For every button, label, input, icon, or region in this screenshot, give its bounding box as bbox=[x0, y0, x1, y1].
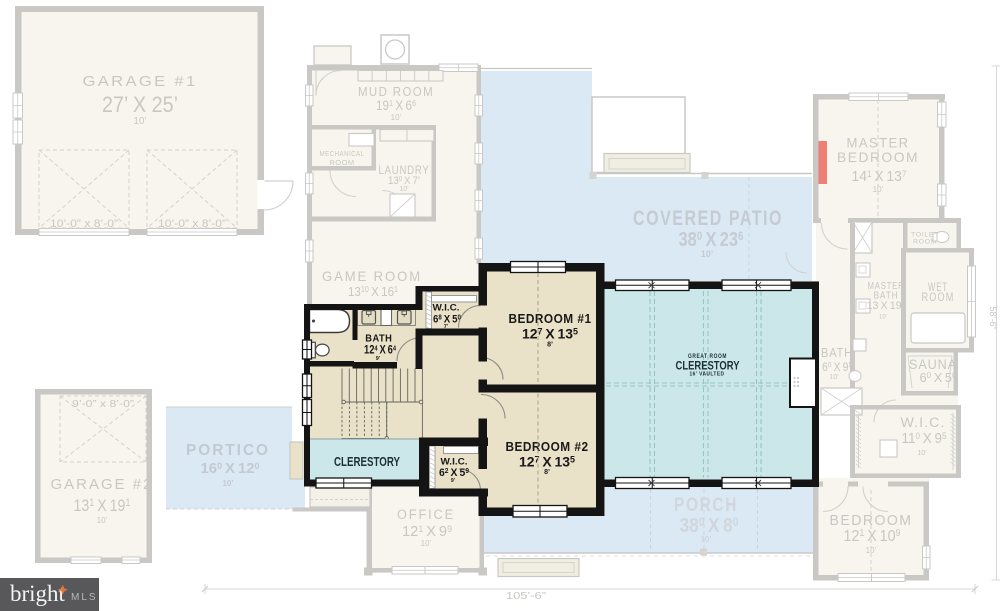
svg-text:W.I.C.: W.I.C. bbox=[901, 415, 946, 430]
svg-text:10’: 10’ bbox=[133, 116, 146, 127]
svg-text:60 X 50: 60 X 50 bbox=[920, 370, 958, 385]
svg-text:GARAGE #1: GARAGE #1 bbox=[83, 74, 198, 90]
svg-text:127 X 135: 127 X 135 bbox=[519, 454, 575, 470]
svg-text:10’-0” x 8’-0”: 10’-0” x 8’-0” bbox=[158, 218, 226, 230]
svg-text:W.I.C.: W.I.C. bbox=[441, 457, 468, 468]
svg-text:CLERESTORY: CLERESTORY bbox=[334, 455, 401, 469]
svg-text:110 X 95: 110 X 95 bbox=[902, 430, 947, 447]
svg-text:PORTICO: PORTICO bbox=[186, 442, 270, 459]
svg-text:10’: 10’ bbox=[391, 113, 402, 122]
svg-text:380 X 80: 380 X 80 bbox=[680, 515, 739, 537]
svg-text:10’: 10’ bbox=[879, 315, 887, 321]
svg-text:27’ X 25’: 27’ X 25’ bbox=[102, 92, 178, 117]
svg-text:16’ VAULTED: 16’ VAULTED bbox=[690, 372, 725, 378]
svg-text:10’: 10’ bbox=[829, 374, 839, 381]
svg-text:10’: 10’ bbox=[701, 249, 714, 259]
svg-text:ROOM: ROOM bbox=[922, 290, 955, 304]
svg-text:9’-0” x 8’-0”: 9’-0” x 8’-0” bbox=[72, 399, 134, 410]
svg-text:9’: 9’ bbox=[376, 356, 381, 362]
svg-text:GARAGE #2: GARAGE #2 bbox=[51, 477, 154, 493]
svg-text:MECHANICAL: MECHANICAL bbox=[320, 149, 365, 158]
svg-text:W.I.C.: W.I.C. bbox=[433, 303, 460, 314]
svg-text:1310 X 161: 1310 X 161 bbox=[348, 284, 398, 299]
svg-text:ROOM: ROOM bbox=[329, 158, 354, 167]
svg-text:10’: 10’ bbox=[917, 450, 927, 457]
svg-text:10’: 10’ bbox=[421, 539, 432, 548]
svg-text:8’: 8’ bbox=[547, 342, 553, 349]
svg-text:105’-6”: 105’-6” bbox=[506, 591, 546, 602]
svg-text:BATH: BATH bbox=[821, 345, 853, 360]
svg-text:OFFICE: OFFICE bbox=[397, 507, 455, 522]
svg-text:BEDROOM #1: BEDROOM #1 bbox=[509, 312, 592, 326]
svg-text:9’: 9’ bbox=[451, 478, 456, 484]
svg-text:124 X 64: 124 X 64 bbox=[364, 345, 396, 357]
svg-text:10’: 10’ bbox=[700, 535, 711, 544]
svg-text:121 X 99: 121 X 99 bbox=[402, 523, 452, 540]
svg-text:PORCH: PORCH bbox=[674, 495, 738, 516]
svg-text:160 X 120: 160 X 120 bbox=[201, 460, 260, 477]
svg-text:GREAT ROOM: GREAT ROOM bbox=[688, 353, 727, 360]
svg-text:10’: 10’ bbox=[97, 516, 108, 525]
svg-text:141 X 137: 141 X 137 bbox=[852, 168, 907, 185]
svg-text:127 X 135: 127 X 135 bbox=[522, 326, 578, 342]
svg-text:10’: 10’ bbox=[399, 186, 409, 193]
svg-text:10’: 10’ bbox=[222, 479, 233, 488]
svg-text:191 X 66: 191 X 66 bbox=[376, 98, 416, 113]
svg-text:13 X 195: 13 X 195 bbox=[867, 300, 906, 312]
svg-text:GAME ROOM: GAME ROOM bbox=[322, 268, 422, 284]
svg-text:8’: 8’ bbox=[544, 469, 550, 476]
svg-text:131 X 191: 131 X 191 bbox=[74, 496, 131, 515]
svg-text:BEDROOM #2: BEDROOM #2 bbox=[506, 440, 589, 454]
svg-text:7’: 7’ bbox=[444, 324, 449, 330]
svg-text:121 X 109: 121 X 109 bbox=[844, 528, 901, 545]
svg-text:BATH: BATH bbox=[365, 333, 392, 344]
svg-text:10’-0” x 8’-0”: 10’-0” x 8’-0” bbox=[50, 218, 118, 230]
svg-text:COVERED PATIO: COVERED PATIO bbox=[633, 206, 783, 230]
svg-text:MLS: MLS bbox=[71, 592, 98, 603]
svg-text:MUD ROOM: MUD ROOM bbox=[358, 85, 434, 99]
svg-text:58’-6”: 58’-6” bbox=[988, 306, 998, 329]
svg-text:380 X 236: 380 X 236 bbox=[679, 229, 744, 251]
svg-text:bright: bright bbox=[10, 581, 66, 606]
svg-text:60 X 95: 60 X 95 bbox=[822, 360, 852, 374]
